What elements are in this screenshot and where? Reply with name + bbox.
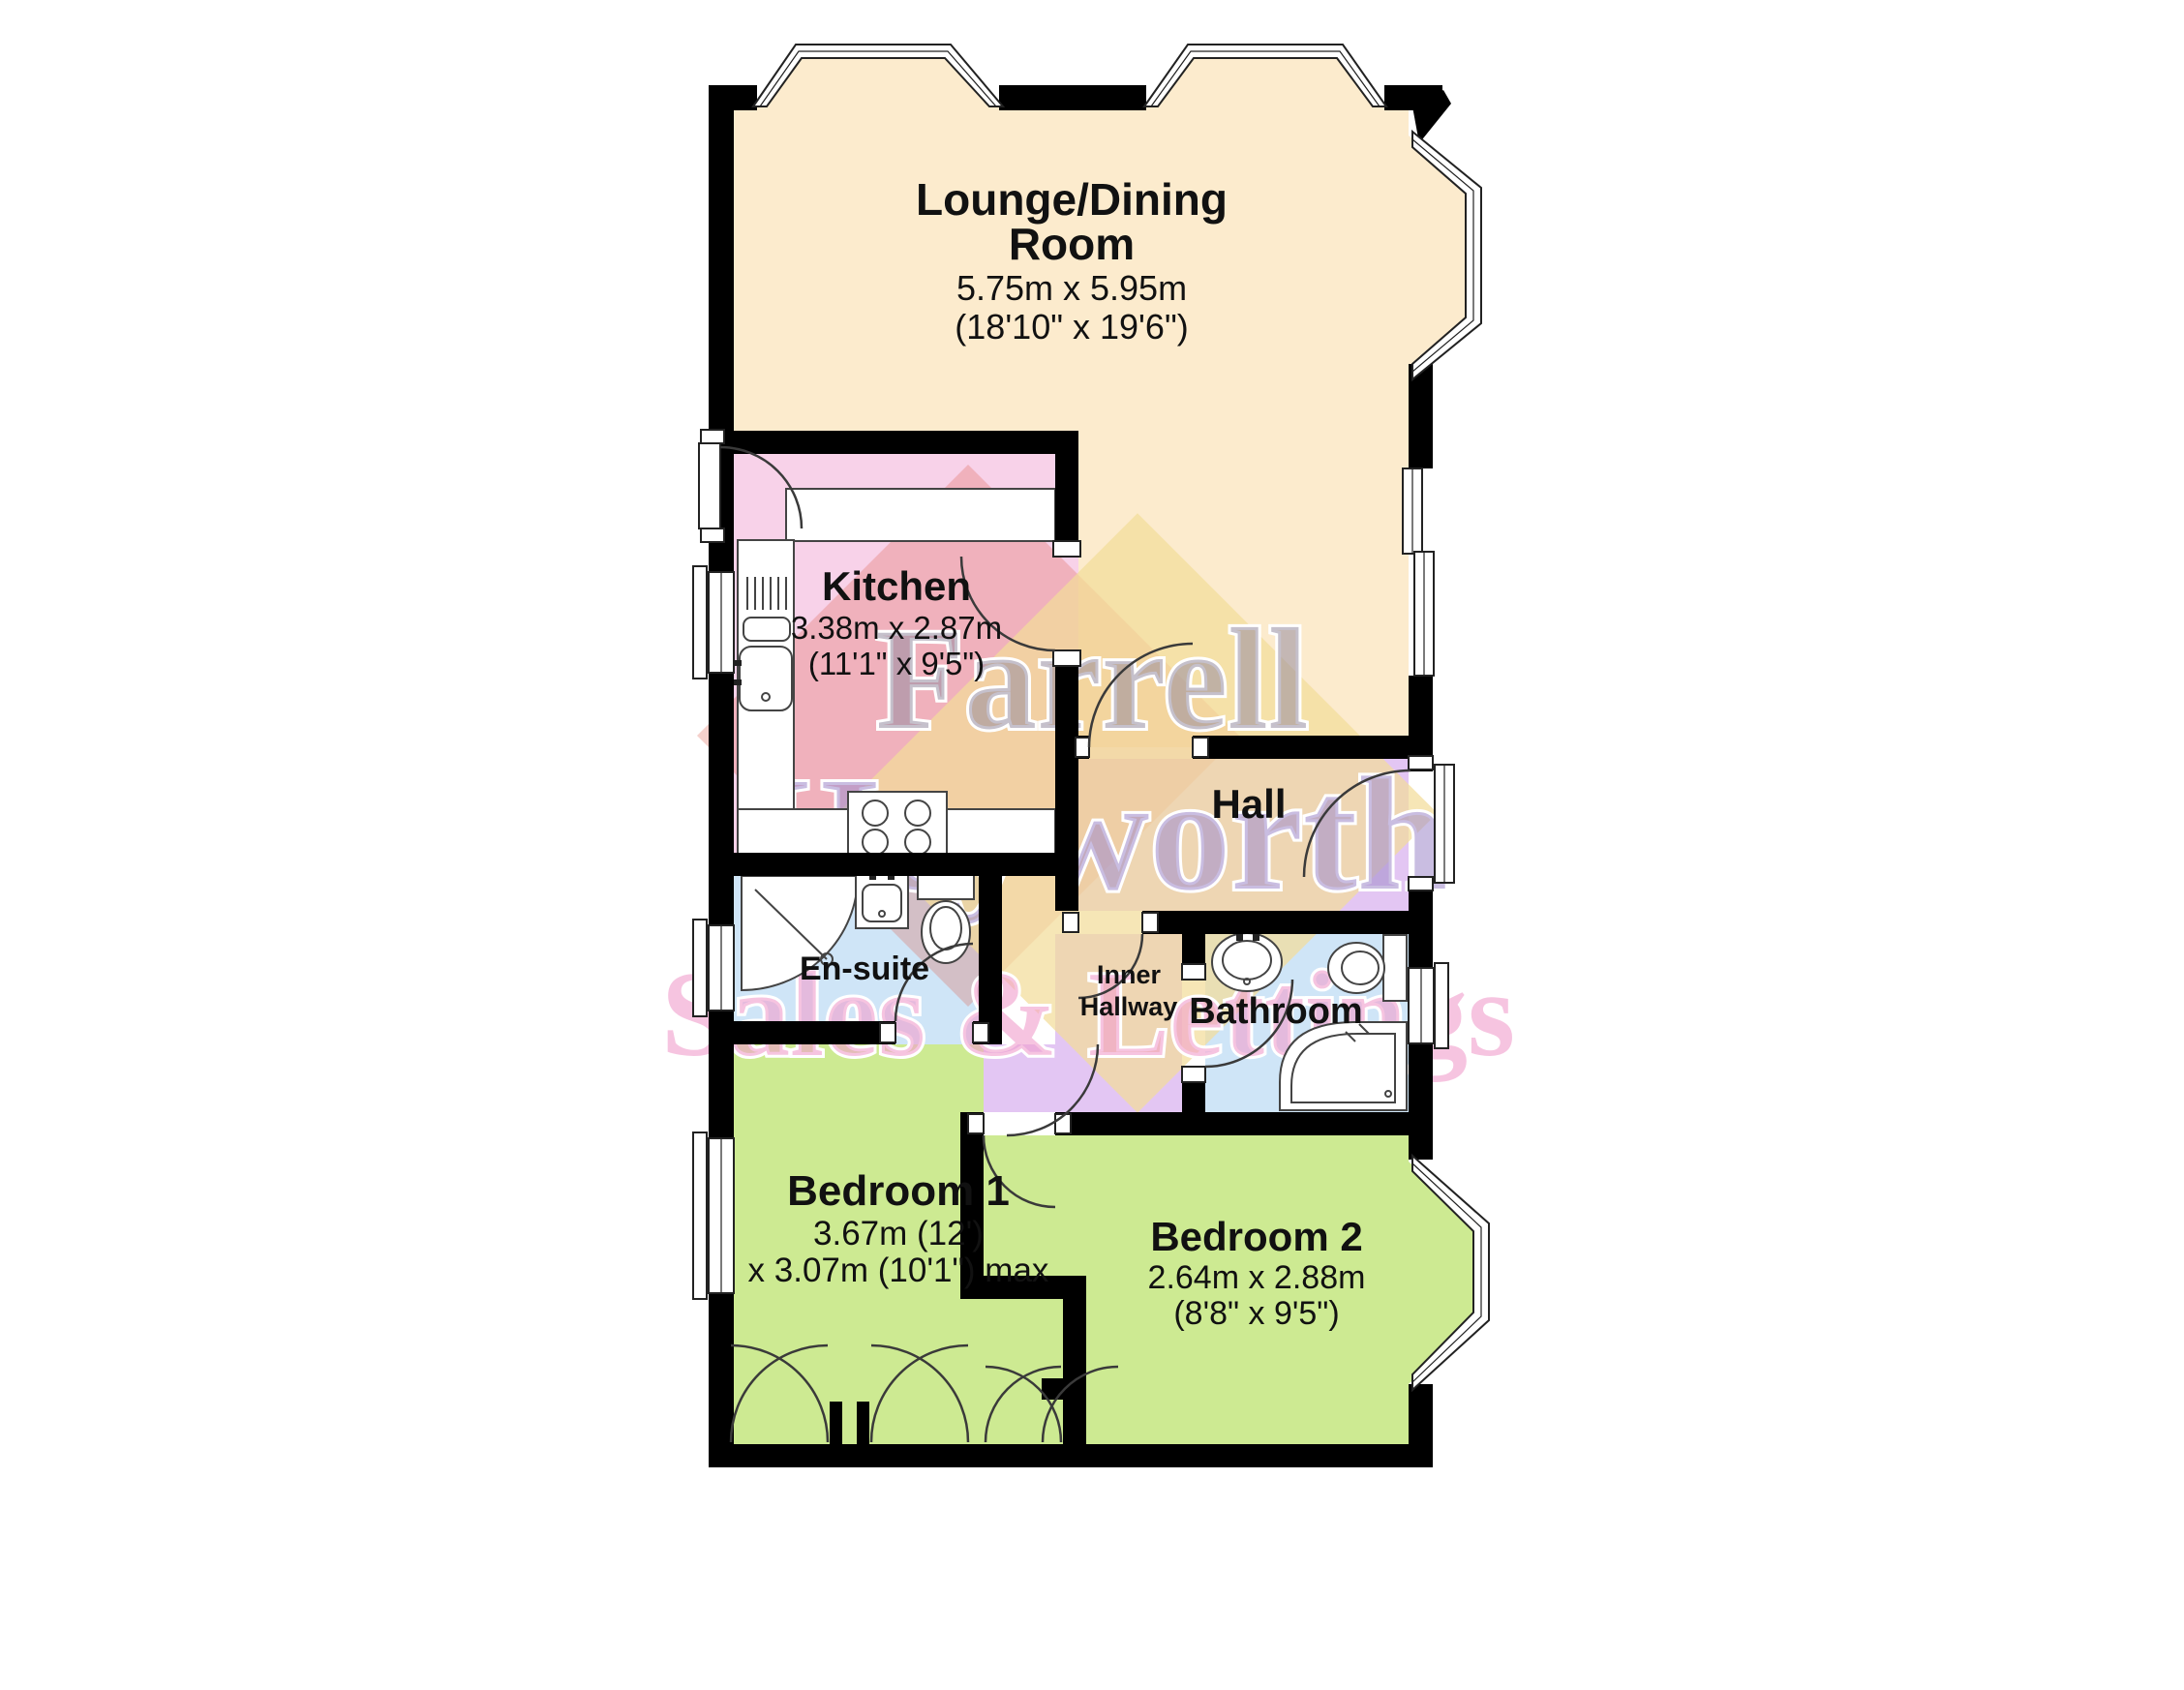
jamb-ensuite-left (880, 1023, 895, 1042)
lounge-dim-imperial: (18'10" x 19'6") (955, 307, 1188, 347)
wall-right-4 (1409, 1041, 1433, 1160)
lounge-right-window-upper (1403, 468, 1422, 554)
wall-bottom (709, 1444, 1433, 1467)
kitchen-label: Kitchen (822, 563, 971, 609)
ensuite-label: En-suite (800, 951, 929, 987)
hob-icon (848, 792, 947, 863)
jamb-kitchen-lounge-top (1053, 541, 1080, 557)
bedroom1-wardrobe-area (984, 1299, 1063, 1444)
floor-plan: Farrell Heyworth Sales & Lettings (0, 0, 2184, 1690)
bedroom2-dim-metric: 2.64m x 2.88m (1148, 1259, 1366, 1296)
wall-ensuite-right (979, 876, 1002, 1044)
jamb-bathroom-bottom (1182, 1067, 1205, 1082)
bedroom2-dim-imperial: (8'8" x 9'5") (1173, 1295, 1339, 1332)
kitchen-counter-top (786, 489, 1055, 541)
ensuite-sink-icon (856, 867, 908, 928)
wall-kitchen-right-lower (1055, 650, 1078, 911)
lounge-right-window-lower (1414, 552, 1434, 676)
inner-hallway-label-line2: Hallway (1080, 992, 1178, 1021)
wall-wardrobe-stub-2 (857, 1402, 869, 1446)
bedroom1-dim-line1: 3.67m (12') (813, 1215, 984, 1252)
wall-kitchen-bottom (734, 853, 1078, 876)
lounge-dim-metric: 5.75m x 5.95m (956, 268, 1187, 308)
jamb-hall-inner-right (1142, 913, 1158, 932)
wall-bedroom2-top (1055, 1112, 1409, 1135)
bathroom-label: Bathroom (1189, 991, 1362, 1032)
jamb-kitchen-lounge-bottom (1053, 650, 1080, 666)
jamb-bathroom-top (1182, 964, 1205, 980)
jamb-lounge-hall-left (1076, 738, 1089, 757)
kitchen-window (693, 566, 734, 679)
jamb-lounge-hall-right (1193, 738, 1208, 757)
bedroom1-dim-line2: x 3.07m (10'1") max (748, 1252, 1049, 1289)
wall-top-left (709, 85, 757, 110)
wall-hall-bottom (1142, 911, 1409, 934)
hall-label: Hall (1211, 781, 1286, 827)
bedroom1-window (693, 1132, 734, 1299)
lounge-label-line2: Room (1009, 219, 1135, 269)
wall-wardrobe-stub-1 (830, 1402, 842, 1446)
wall-top-mid (999, 85, 1146, 110)
ensuite-window (693, 920, 734, 1016)
jamb-hall-inner-left (1063, 913, 1078, 932)
jamb-bedroom2-left (968, 1114, 984, 1133)
wall-kitchen-top (734, 431, 1078, 454)
inner-hallway-label-line1: Inner (1097, 960, 1162, 989)
jamb-ensuite-right (973, 1023, 988, 1042)
wall-bedroom2-closet (1063, 1299, 1086, 1444)
kitchen-dim-metric: 3.38m x 2.87m (791, 610, 1002, 646)
bedroom1-label: Bedroom 1 (787, 1167, 1010, 1215)
bedroom2-label: Bedroom 2 (1150, 1214, 1362, 1259)
wall-ensuite-bottom-left (709, 1021, 895, 1044)
wall-hall-top-right (1193, 736, 1409, 759)
bathroom-window (1409, 963, 1448, 1048)
kitchen-dim-imperial: (11'1" x 9'5") (808, 646, 985, 681)
lounge-label-line1: Lounge/Dining (916, 174, 1228, 225)
